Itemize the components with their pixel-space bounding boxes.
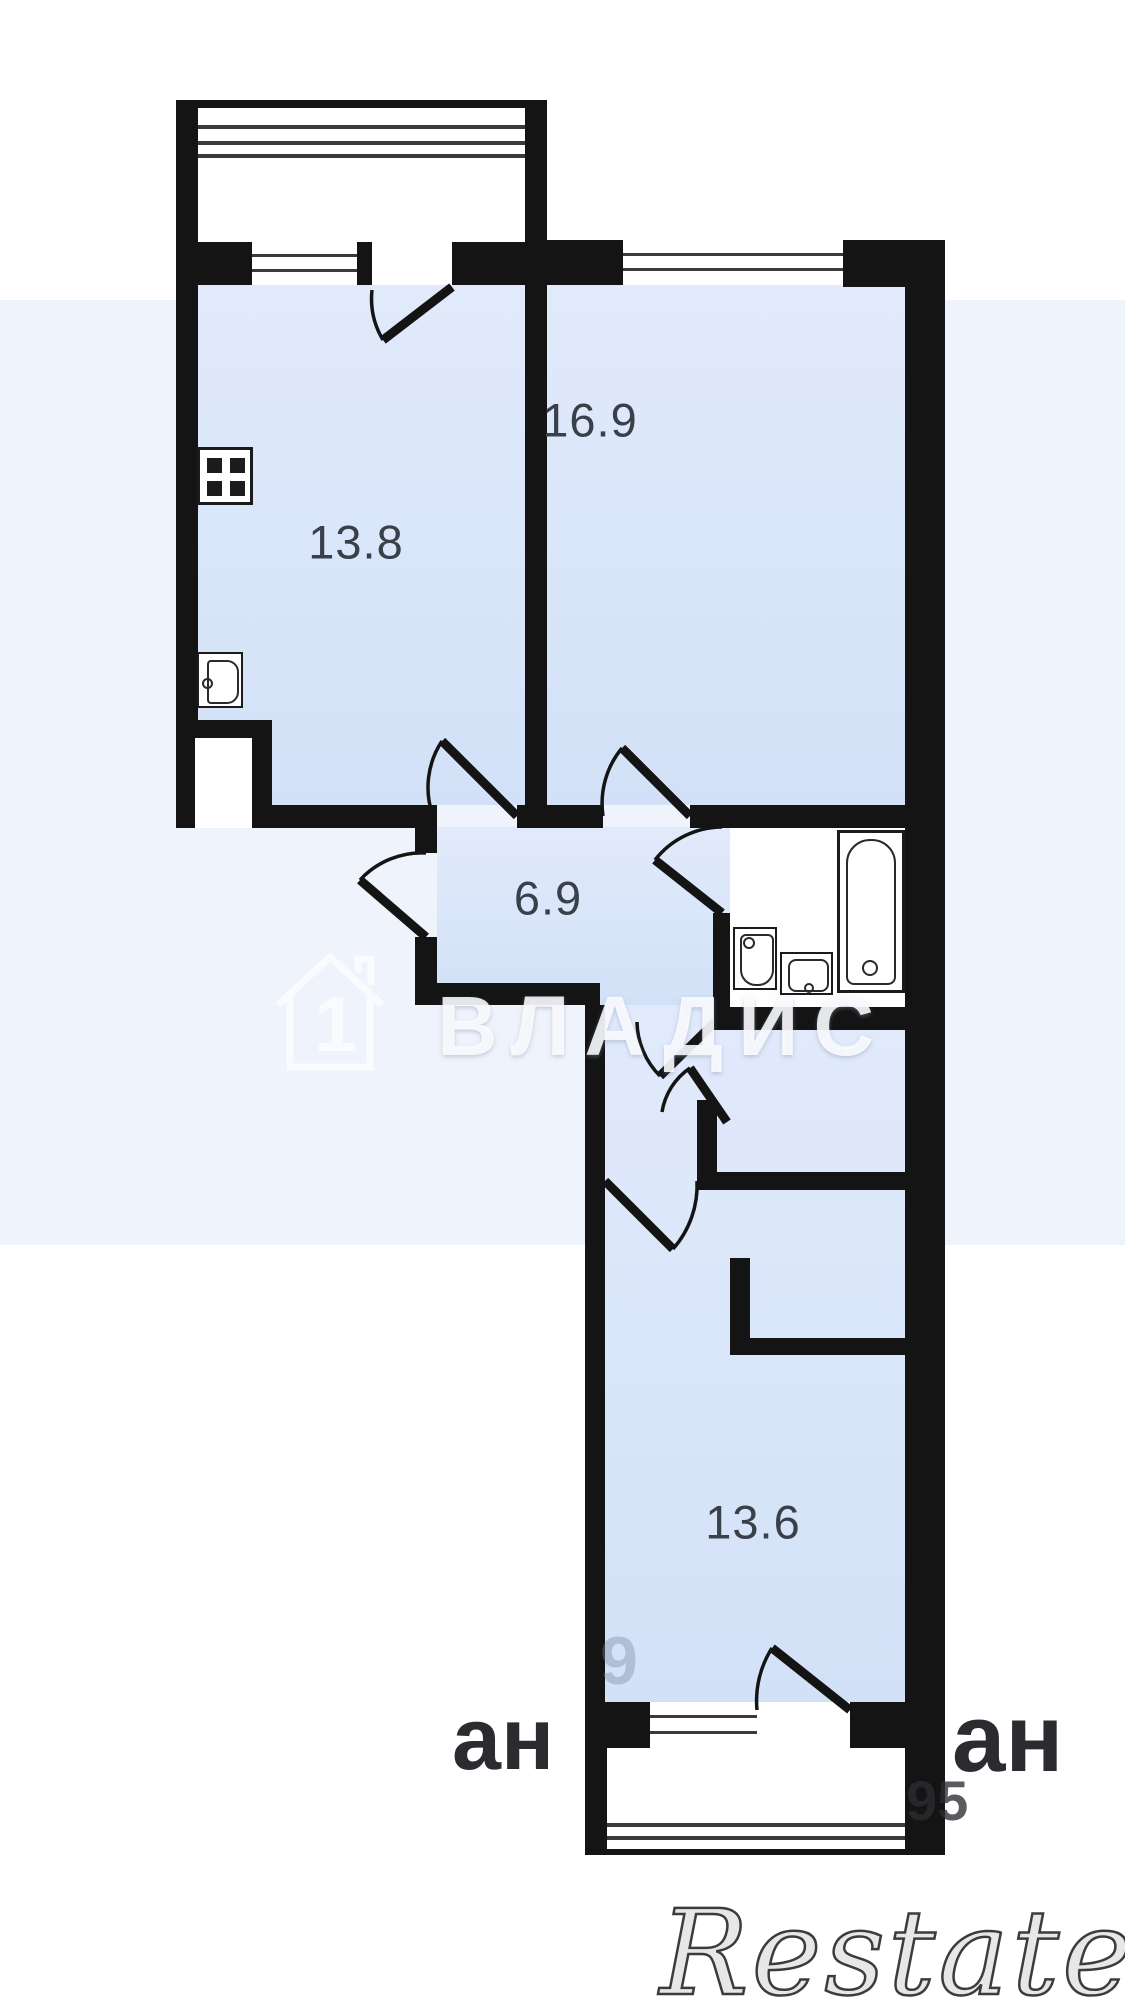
door-arc — [655, 827, 722, 860]
vladis-watermark: ВЛАДИС — [437, 978, 889, 1075]
watermark-fragment-left: ан — [452, 1688, 554, 1790]
door-arc — [757, 1648, 772, 1710]
door-arc — [360, 853, 426, 880]
door-leaf — [383, 287, 452, 340]
watermark-fragment-number: 95 — [906, 1768, 968, 1833]
living-room-area-label: 16.9 — [542, 393, 637, 448]
kitchen-area-label: 13.8 — [308, 515, 403, 570]
floor-plan-screenshot: 13.8 16.9 6.9 13.6 1 ВЛАДИС ан ан 95 9 R… — [0, 0, 1125, 2000]
watermark-fragment-right: ан — [952, 1684, 1063, 1794]
door-leaf — [360, 880, 426, 937]
vladis-house-icon: 1 — [268, 933, 392, 1077]
door-arc — [602, 748, 622, 816]
bedroom-area-label: 13.6 — [705, 1495, 800, 1550]
watermark-ghost-digit: 9 — [600, 1622, 638, 1700]
door-leaf — [622, 748, 690, 816]
hallway-area-label: 6.9 — [514, 871, 582, 926]
door-arc — [372, 290, 383, 340]
svg-text:1: 1 — [314, 980, 357, 1068]
door-leaf — [690, 1068, 727, 1122]
door-arc — [673, 1181, 697, 1249]
door-leaf — [772, 1648, 850, 1710]
door-arc — [428, 741, 442, 816]
door-leaf — [605, 1181, 673, 1249]
door-leaf — [655, 860, 722, 913]
door-leaf — [442, 741, 517, 816]
restate-logo: Restate — [660, 1884, 1125, 2000]
